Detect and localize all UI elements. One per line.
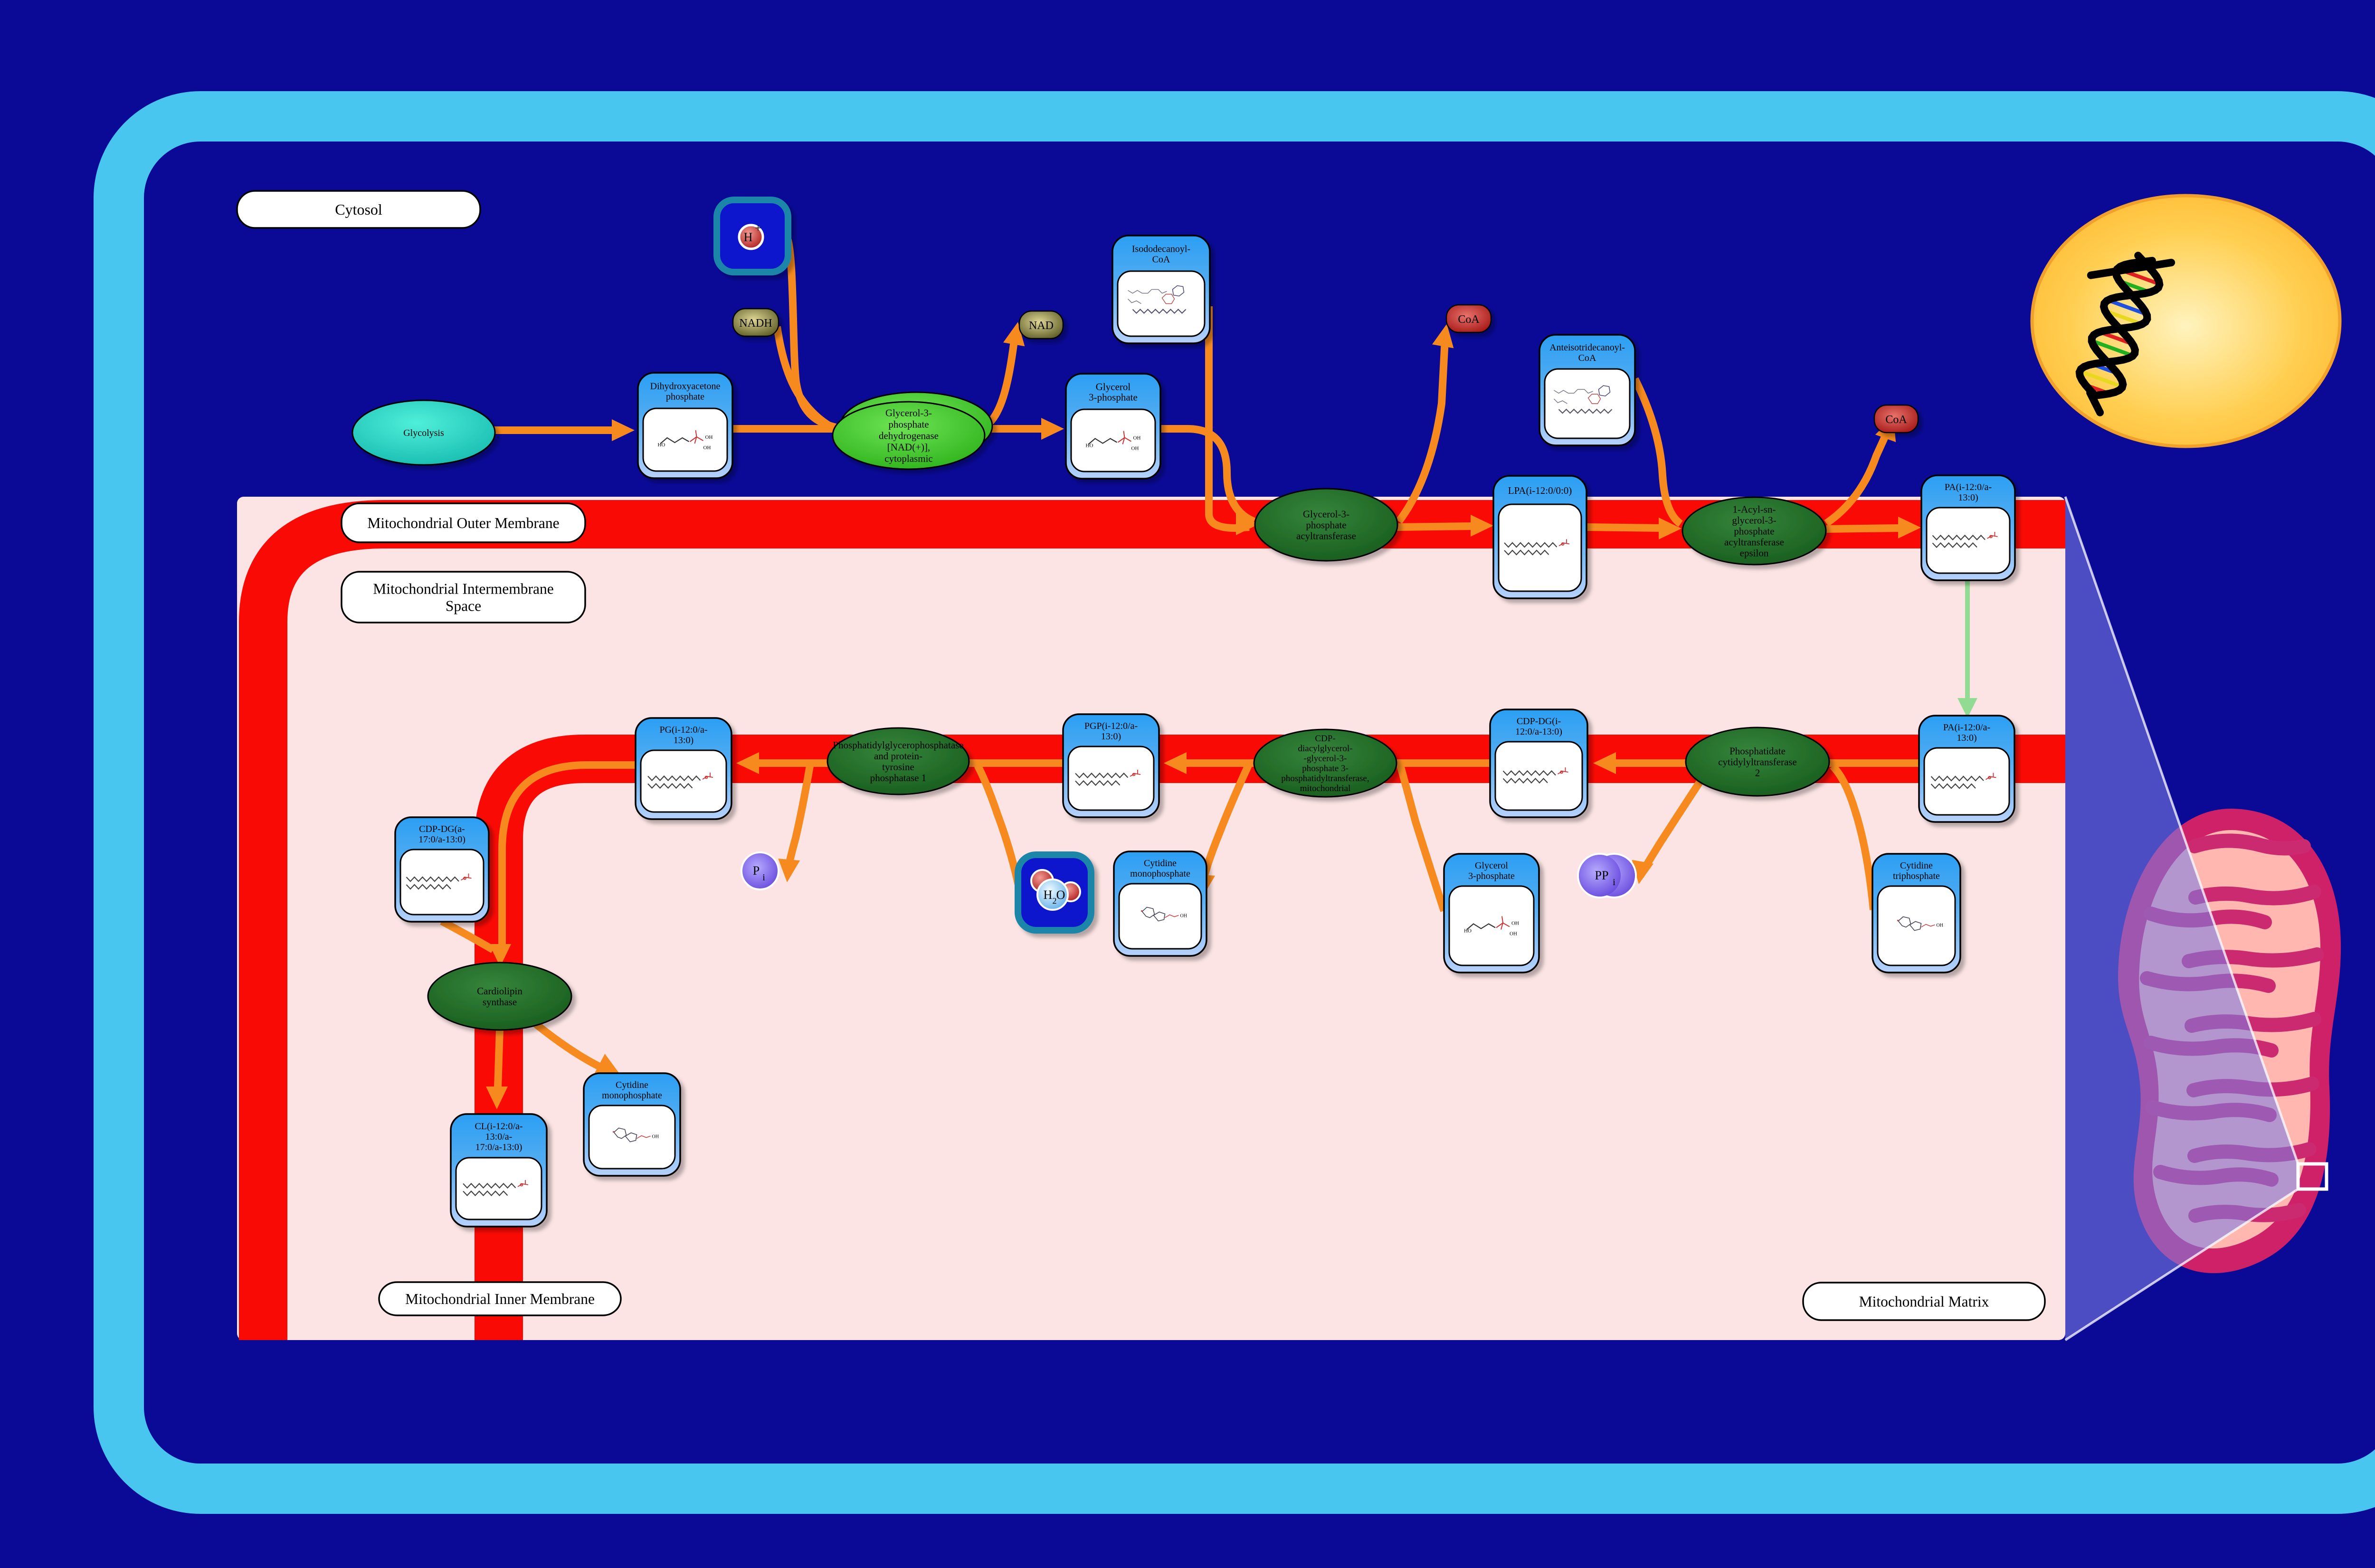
svg-text:Cytidine: Cytidine [616,1080,648,1090]
svg-text:13:0): 13:0) [1957,733,1976,743]
svg-text:OH: OH [1180,914,1187,919]
svg-text:triphosphate: triphosphate [1893,871,1940,881]
svg-text:P: P [753,864,760,878]
svg-text:2: 2 [1755,767,1760,778]
svg-text:epsilon: epsilon [1740,547,1769,558]
svg-text:LPA(i-12:0/0:0): LPA(i-12:0/0:0) [1508,485,1572,496]
svg-text:OH: OH [703,445,711,451]
svg-text:mitochondrial: mitochondrial [1300,784,1351,793]
svg-text:3-phosphate: 3-phosphate [1089,392,1138,403]
svg-text:CoA: CoA [1458,313,1480,326]
svg-text:monophosphate: monophosphate [1130,869,1190,879]
svg-text:OH: OH [1511,921,1519,926]
svg-text:OH: OH [1937,923,1943,928]
svg-text:phosphatidyltransferase,: phosphatidyltransferase, [1281,774,1369,784]
svg-text:acyltransferase: acyltransferase [1724,536,1784,548]
svg-text:dehydrogenase: dehydrogenase [879,430,939,441]
svg-text:HO: HO [1464,928,1472,934]
svg-text:phosphate 3-: phosphate 3- [1302,764,1349,774]
svg-text:13:0): 13:0) [1101,731,1121,742]
svg-text:tyrosine: tyrosine [882,761,914,773]
svg-text:Glycerol-3-: Glycerol-3- [885,407,932,418]
svg-text:HO: HO [1086,443,1093,449]
svg-text:Mitochondrial Inner Membrane: Mitochondrial Inner Membrane [405,1291,595,1307]
svg-text:phosphatase 1: phosphatase 1 [870,772,926,784]
svg-text:Mitochondrial Matrix: Mitochondrial Matrix [1859,1294,1989,1310]
svg-text:OH: OH [1131,446,1139,452]
svg-text:PG(i-12:0/a-: PG(i-12:0/a- [659,725,707,735]
svg-text:phosphate: phosphate [666,392,704,402]
svg-text:Glycolysis: Glycolysis [403,428,444,438]
svg-text:1-Acyl-sn-: 1-Acyl-sn- [1733,503,1776,515]
svg-text:Glycerol-3-: Glycerol-3- [1303,508,1349,520]
svg-text:phosphate: phosphate [1306,519,1346,530]
svg-text:CoA: CoA [1578,353,1596,363]
svg-text:Phosphatidate: Phosphatidate [1729,745,1786,756]
svg-text:Glycerol: Glycerol [1096,381,1131,393]
svg-text:[NAD(+)],: [NAD(+)], [887,441,931,453]
svg-text:NAD: NAD [1029,320,1054,332]
svg-text:13:0/a-: 13:0/a- [485,1132,513,1142]
svg-text:17:0/a-13:0): 17:0/a-13:0) [475,1142,522,1152]
svg-text:NADH: NADH [739,317,772,330]
svg-text:Cytidine: Cytidine [1900,860,1933,871]
svg-text:CoA: CoA [1152,255,1170,265]
svg-text:13:0): 13:0) [674,735,693,746]
svg-text:3-phosphate: 3-phosphate [1468,871,1515,881]
svg-text:CDP-: CDP- [1315,734,1335,744]
svg-text:PA(i-12:0/a-: PA(i-12:0/a- [1943,722,1990,733]
svg-text:CoA: CoA [1885,414,1907,426]
svg-text:Mitochondrial Intermembrane: Mitochondrial Intermembrane [373,581,554,597]
svg-text:OH: OH [652,1134,659,1140]
svg-text:diacylglycerol-: diacylglycerol- [1298,744,1352,754]
svg-text:Phosphatidylglycerophosphatase: Phosphatidylglycerophosphatase [833,739,963,751]
svg-text:monophosphate: monophosphate [602,1090,662,1101]
svg-text:Cytidine: Cytidine [1144,858,1177,869]
svg-text:OH: OH [1510,931,1517,937]
svg-text:12:0/a-13:0): 12:0/a-13:0) [1515,727,1562,737]
svg-text:Glycerol: Glycerol [1475,860,1508,871]
svg-text:OH: OH [1133,435,1141,441]
svg-text:PA(i-12:0/a-: PA(i-12:0/a- [1945,482,1992,492]
svg-text:O: O [1056,888,1065,902]
svg-text:i: i [762,872,765,883]
svg-text:H: H [744,230,753,244]
svg-text:acyltransferase: acyltransferase [1296,530,1356,541]
svg-text:Mitochondrial Outer Membrane: Mitochondrial Outer Membrane [367,515,559,531]
svg-text:i: i [1613,877,1615,888]
svg-text:cytoplasmic: cytoplasmic [884,453,932,464]
svg-text:CDP-DG(a-: CDP-DG(a- [419,824,465,834]
svg-text:synthase: synthase [483,996,517,1008]
svg-text:Isododecanoyl-: Isododecanoyl- [1132,244,1190,255]
svg-text:HO: HO [658,442,665,448]
svg-text:PGP(i-12:0/a-: PGP(i-12:0/a- [1084,721,1138,731]
svg-text:13:0): 13:0) [1958,492,1978,503]
svg-text:and protein-: and protein- [874,750,922,762]
svg-text:cytidylyltransferase: cytidylyltransferase [1718,756,1797,767]
svg-text:17:0/a-13:0): 17:0/a-13:0) [418,834,465,845]
svg-text:OH: OH [705,435,713,440]
svg-text:-glycerol-3-: -glycerol-3- [1304,754,1347,764]
svg-text:Cytosol: Cytosol [335,201,382,218]
svg-text:Anteisotridecanoyl-: Anteisotridecanoyl- [1549,342,1625,353]
svg-text:Space: Space [446,598,481,614]
svg-text:Cardiolipin: Cardiolipin [477,985,522,997]
svg-text:glycerol-3-: glycerol-3- [1732,514,1776,526]
svg-text:phosphate: phosphate [1734,525,1774,537]
svg-text:H: H [1044,888,1053,902]
svg-text:CL(i-12:0/a-: CL(i-12:0/a- [475,1121,522,1132]
svg-text:+: + [755,222,761,235]
svg-text:phosphate: phosphate [888,418,929,430]
svg-text:Dihydroxyacetone: Dihydroxyacetone [650,381,721,392]
svg-text:PP: PP [1595,869,1609,882]
svg-text:CDP-DG(i-: CDP-DG(i- [1517,716,1561,727]
